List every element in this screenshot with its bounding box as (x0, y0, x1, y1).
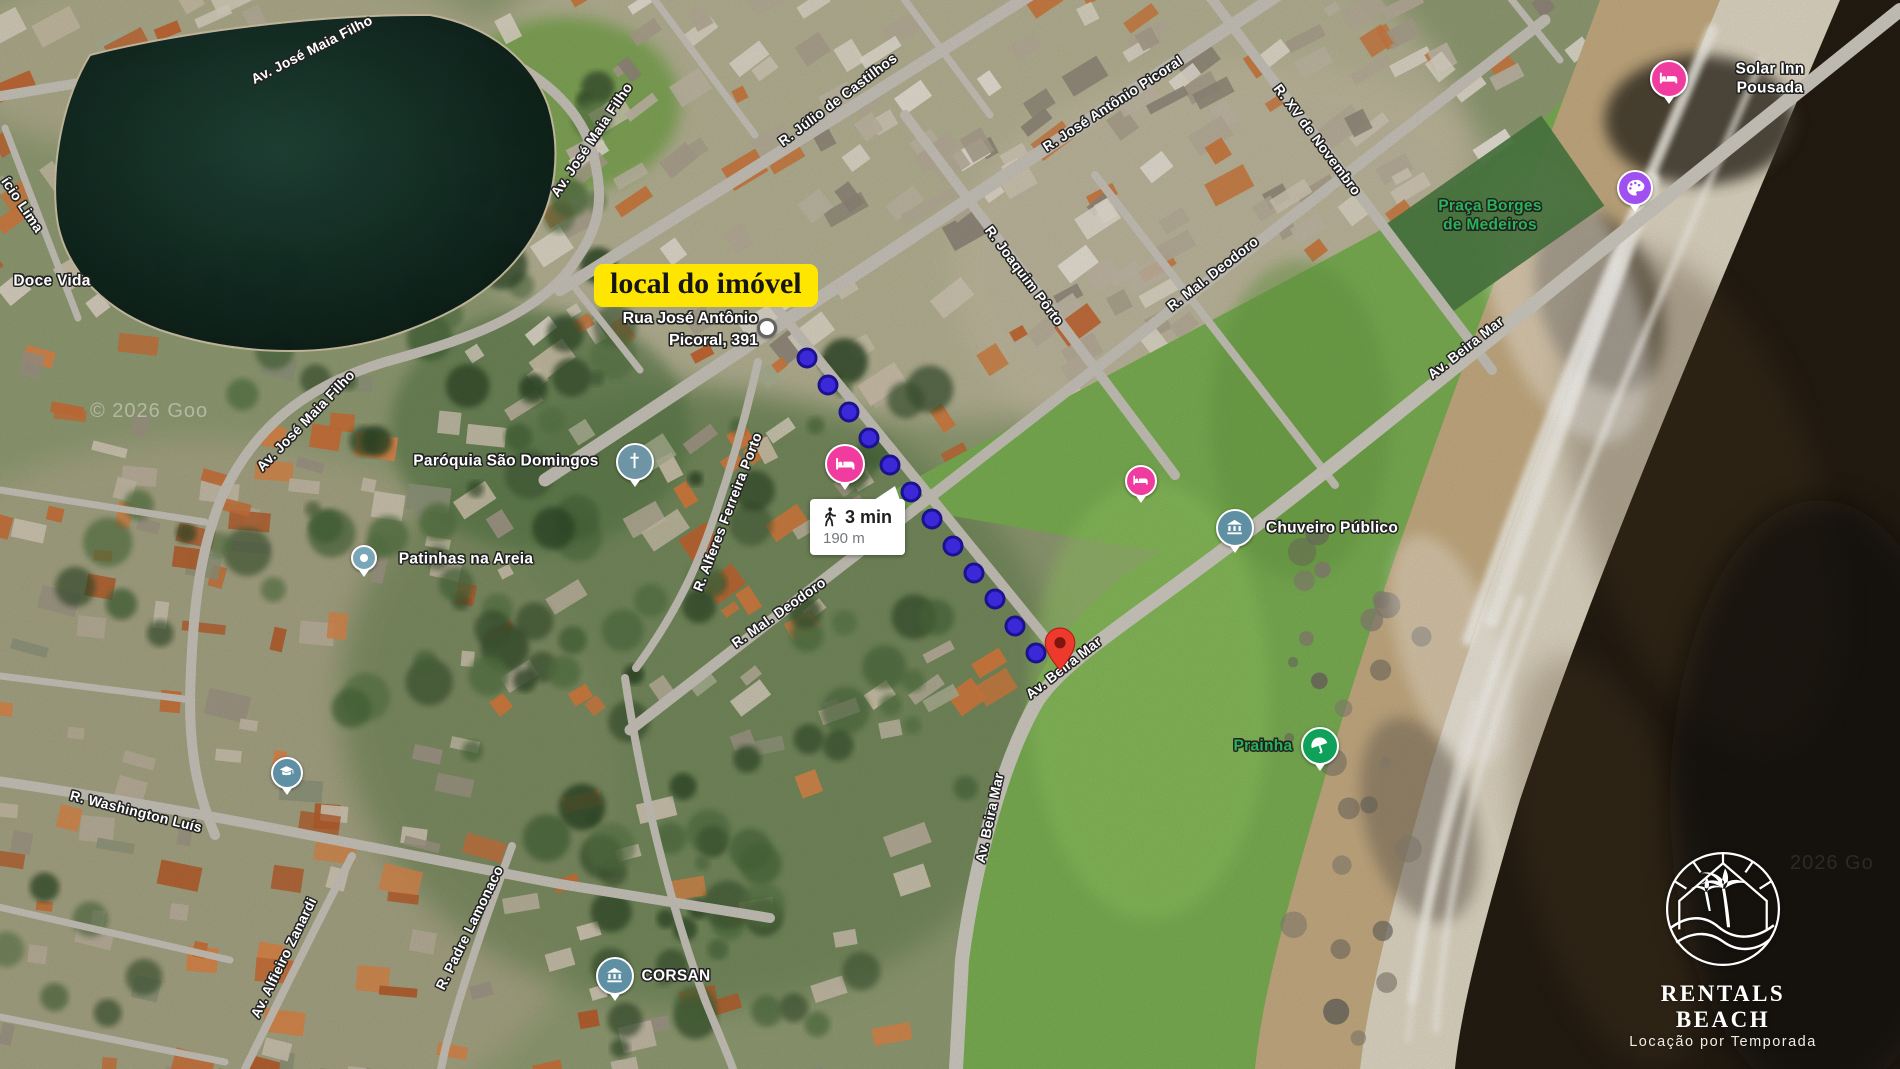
school-poi-pin[interactable] (271, 757, 303, 789)
paroquia-sao-domingos-pin[interactable] (616, 443, 654, 481)
route-dot (985, 589, 1006, 610)
route-dot (859, 428, 880, 449)
address-line-1: Rua José Antônio (623, 310, 758, 327)
route-info-bubble[interactable]: 3 min 190 m (810, 499, 905, 555)
route-dot (839, 402, 860, 423)
route-dot (818, 375, 839, 396)
destination-marker[interactable] (1044, 627, 1076, 671)
route-dot (943, 536, 964, 557)
patinhas-na-areia-pin[interactable] (351, 545, 377, 571)
property-address-label: Rua José Antônio Picoral, 391 (598, 308, 758, 353)
corsan-pin[interactable] (596, 957, 634, 995)
route-duration: 3 min (845, 507, 892, 528)
palette-icon (1624, 177, 1646, 199)
solar-inn-pousada-pin[interactable] (1650, 60, 1688, 98)
route-origin-marker (757, 318, 777, 338)
satellite-imagery (0, 0, 1900, 1069)
address-line-2: Picoral, 391 (669, 332, 758, 349)
route-dot (922, 509, 943, 530)
bed-icon (833, 452, 857, 476)
rentals-beach-logo: RENTALS BEACH Locação por Temporada (1628, 848, 1818, 1050)
route-dot (797, 348, 818, 369)
art-poi-pin[interactable] (1617, 170, 1653, 206)
dot-icon (360, 554, 368, 562)
umbrella-icon (1308, 734, 1331, 757)
church-icon (623, 450, 646, 473)
map-copyright: © 2026 Goo (90, 400, 208, 423)
bank-icon (1223, 516, 1246, 539)
bank-icon (603, 964, 626, 987)
bubble-pointer (874, 486, 900, 500)
property-location-badge: local do imóvel (594, 264, 818, 307)
walking-person-icon (821, 506, 838, 528)
bed-icon (1657, 67, 1680, 90)
lodging-poi-2-pin[interactable] (1125, 465, 1157, 497)
route-dot (964, 563, 985, 584)
route-dot (1005, 616, 1026, 637)
grad-cap-icon (277, 763, 296, 782)
chuveiro-publico-pin[interactable] (1216, 509, 1254, 547)
bed-icon (1131, 471, 1150, 490)
logo-subtitle: Locação por Temporada (1628, 1034, 1818, 1050)
prainha-pin[interactable] (1301, 727, 1339, 765)
route-dot (880, 455, 901, 476)
rentals-beach-logo-mark (1662, 848, 1784, 970)
map-canvas[interactable]: Av. José Maia FilhoAv. José Maia FilhoAv… (0, 0, 1900, 1069)
logo-title: RENTALS BEACH (1628, 981, 1818, 1033)
route-distance: 190 m (823, 530, 893, 547)
lodging-poi-1-pin[interactable] (825, 444, 865, 484)
